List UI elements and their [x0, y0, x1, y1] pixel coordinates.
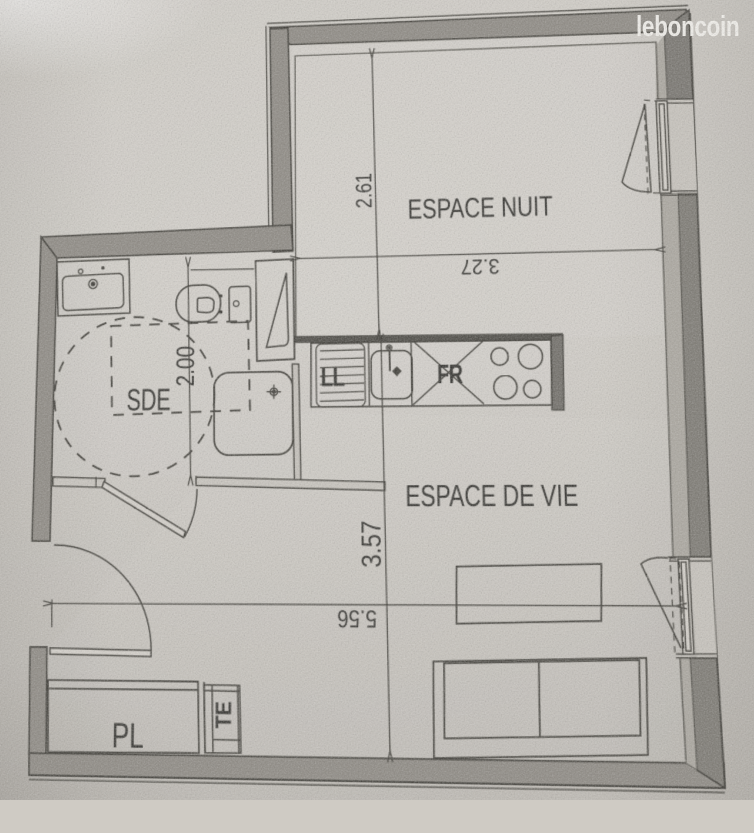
svg-text:SDE: SDE: [126, 383, 171, 418]
svg-text:ESPACE DE VIE: ESPACE DE VIE: [405, 480, 579, 514]
svg-text:2.00: 2.00: [172, 346, 200, 387]
svg-text:3.27: 3.27: [461, 255, 500, 279]
svg-text:PL: PL: [111, 716, 144, 755]
svg-text:TE: TE: [212, 701, 237, 729]
svg-text:5.56: 5.56: [337, 604, 377, 632]
svg-text:LL: LL: [321, 361, 345, 392]
svg-text:ESPACE NUIT: ESPACE NUIT: [407, 190, 553, 225]
svg-text:2.61: 2.61: [352, 173, 377, 209]
svg-text:3.57: 3.57: [355, 520, 387, 567]
svg-text:FR: FR: [437, 360, 463, 390]
